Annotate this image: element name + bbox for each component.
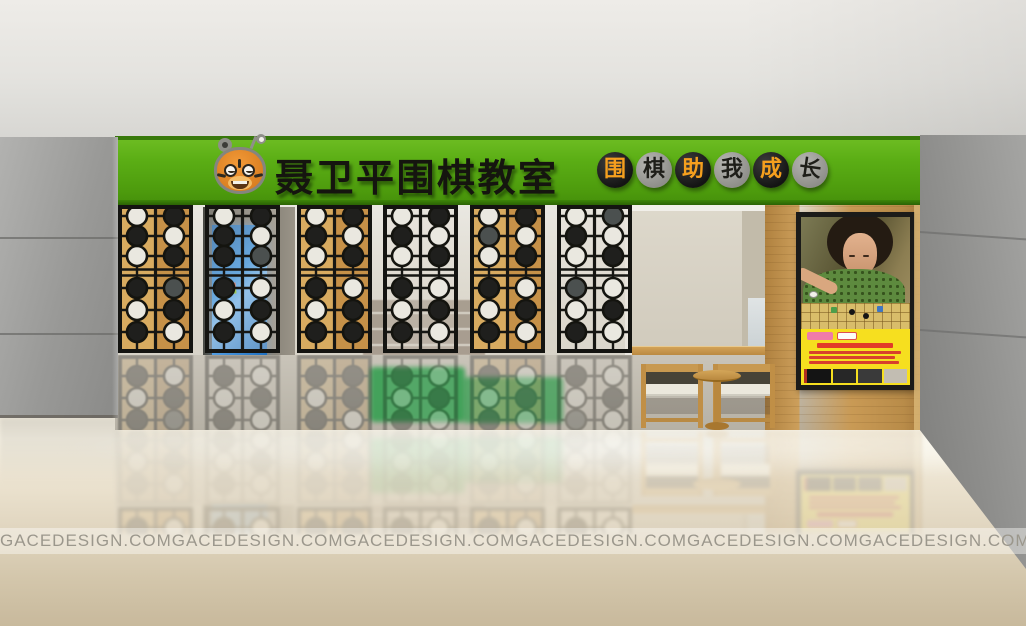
slogan-plaque: 棋 <box>636 152 672 188</box>
lattice-panel-open <box>383 205 458 353</box>
floor-reflection <box>115 430 922 534</box>
wood-pillar <box>765 198 922 430</box>
poster-title-chip <box>837 332 857 340</box>
watermark-text: GACEDESIGN.COM <box>515 531 687 551</box>
lattice-panel-open <box>205 205 280 353</box>
watermark-text: GACEDESIGN.COM <box>687 531 859 551</box>
round-side-table <box>693 370 741 430</box>
tiger-go-mascot-icon <box>212 137 268 197</box>
girl-playing-go-photo <box>801 217 910 329</box>
poster-title-chip <box>807 332 833 340</box>
go-board <box>801 303 910 329</box>
slogan-plaque: 助 <box>675 152 711 188</box>
slogan-plaques: 围棋助我成长 <box>597 152 828 190</box>
lattice-panel-open <box>557 205 632 353</box>
lattice-panel-wood <box>470 205 545 353</box>
facade <box>115 198 922 430</box>
poster-thumbnail <box>833 369 857 383</box>
sign-board: 聂卫平围棋教室 围棋助我成长 <box>115 136 922 205</box>
left-wall-reflection <box>0 418 118 488</box>
watermark-text: GACEDESIGN.COM <box>172 531 344 551</box>
watermark-text: GACEDESIGN.COM <box>0 531 172 551</box>
poster-thumbnail <box>858 369 882 383</box>
poster-thumbnail <box>804 369 831 383</box>
slogan-plaque: 长 <box>790 150 831 191</box>
lightbox-poster <box>796 212 915 390</box>
lattice-panel-wood <box>118 205 193 353</box>
ceiling <box>0 0 1026 140</box>
watermark-band: GACEDESIGN.COMGACEDESIGN.COMGACEDESIGN.C… <box>0 528 1026 554</box>
watermark-text: GACEDESIGN.COM <box>344 531 516 551</box>
poster-thumbnail <box>884 369 908 383</box>
poster-heading <box>817 343 893 348</box>
lattice-panel-wood <box>297 205 372 353</box>
poster-photo-strip <box>801 367 910 385</box>
scene: 聂卫平围棋教室 围棋助我成长 GACEDESIGN.COMGACEDESIGN.… <box>0 0 1026 626</box>
poster-text-block <box>801 329 910 367</box>
slogan-plaque: 围 <box>597 152 633 188</box>
white-go-stone <box>809 291 818 298</box>
slogan-plaque: 我 <box>714 152 750 188</box>
watermark-text: GACEDESIGN.COM <box>859 531 1026 551</box>
slogan-plaque: 成 <box>753 152 789 188</box>
left-wall <box>0 137 118 418</box>
sign-title: 聂卫平围棋教室 <box>275 147 559 202</box>
